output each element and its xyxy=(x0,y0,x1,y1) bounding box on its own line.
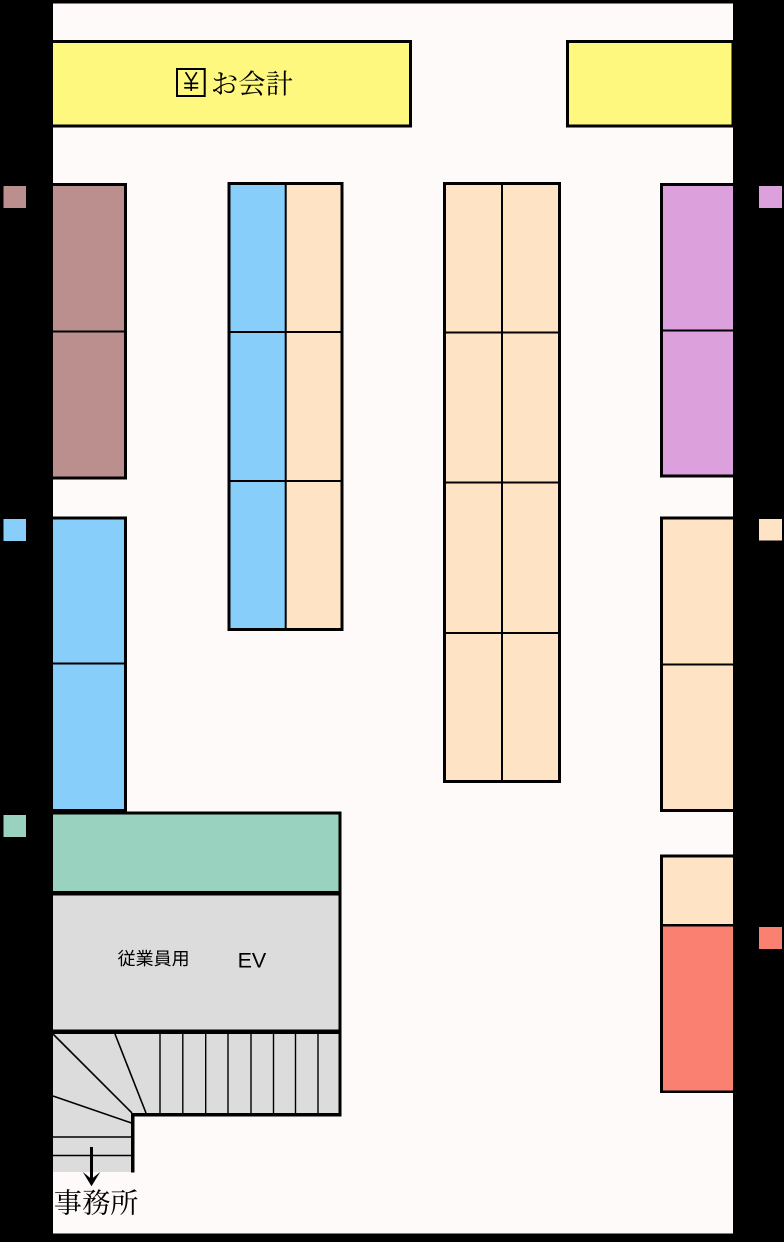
svg-text:EV: EV xyxy=(238,948,267,972)
